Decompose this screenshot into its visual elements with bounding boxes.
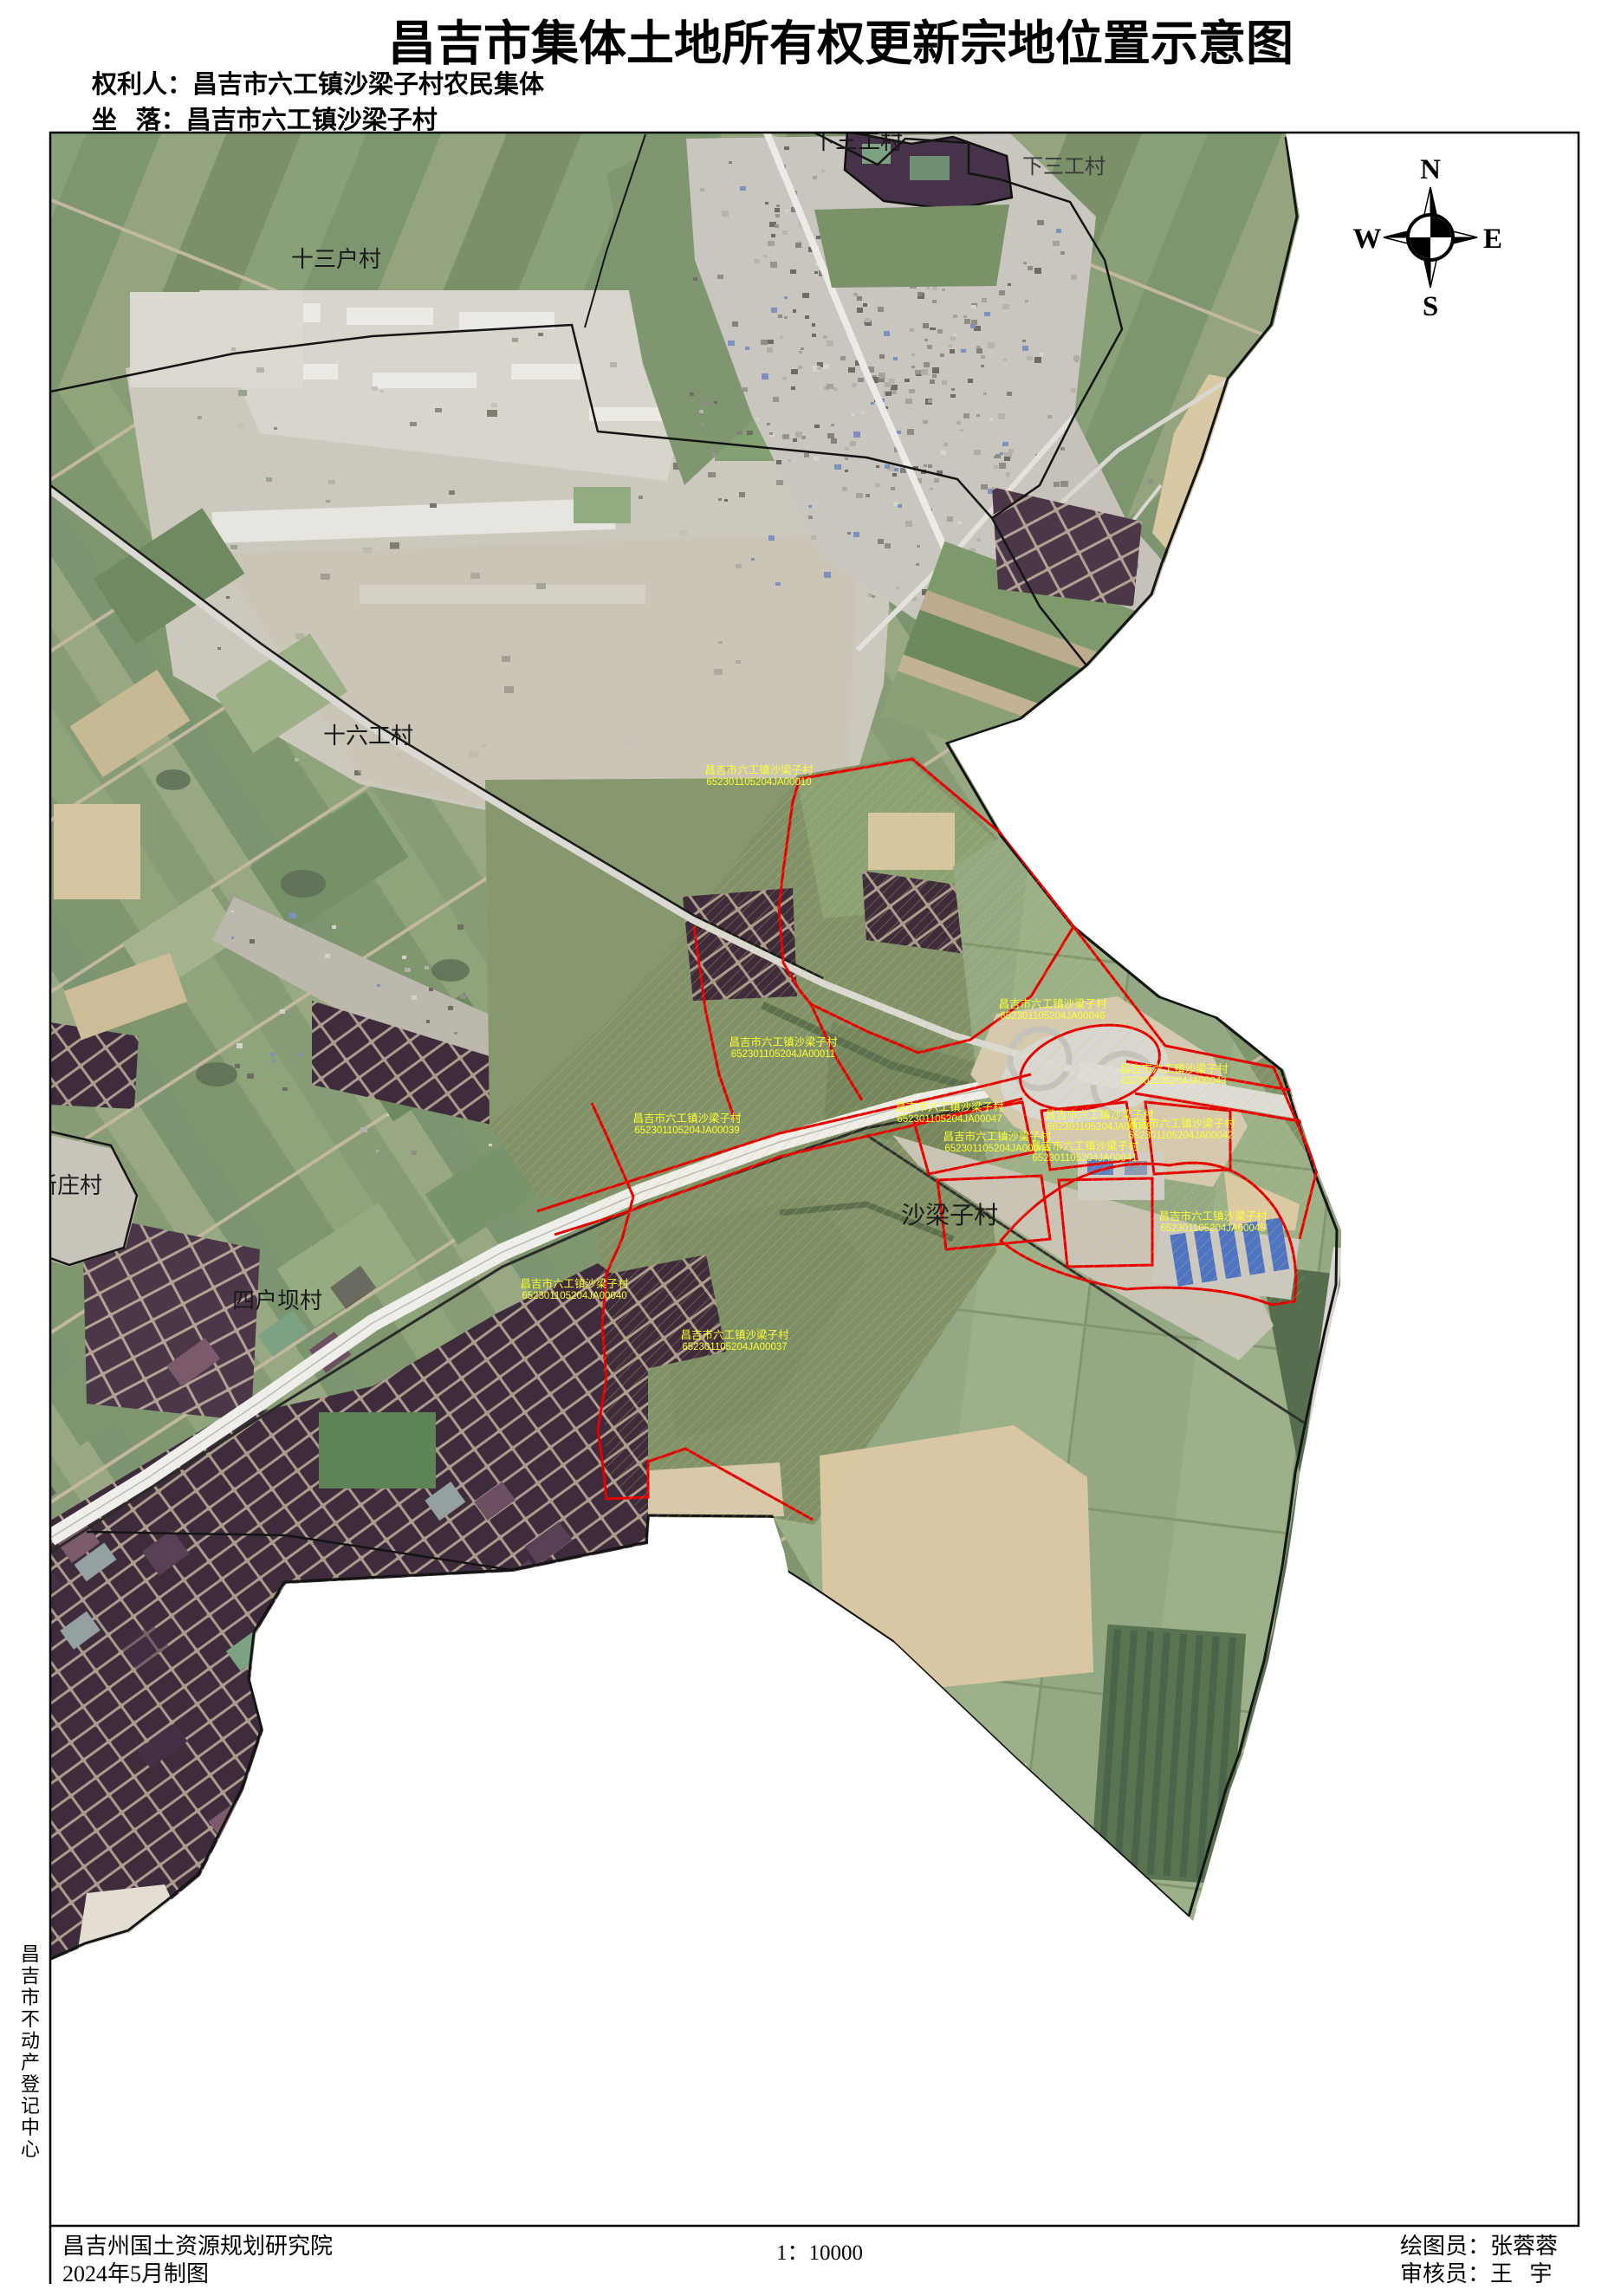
svg-text:S: S: [1423, 291, 1438, 322]
svg-text:昌吉市六工镇沙梁子村: 昌吉市六工镇沙梁子村: [998, 997, 1107, 1010]
svg-text:N: N: [1420, 154, 1441, 185]
svg-text:新庄村: 新庄村: [35, 1173, 102, 1198]
svg-text:昌吉市六工镇沙梁子村: 昌吉市六工镇沙梁子村: [1119, 1062, 1229, 1075]
svg-text:昌吉市六工镇沙梁子村: 昌吉市六工镇沙梁子村: [1030, 1139, 1139, 1152]
svg-text:652301105204JA00040: 652301105204JA00040: [522, 1291, 626, 1301]
svg-text:昌吉市六工镇沙梁子村: 昌吉市六工镇沙梁子村: [704, 763, 814, 776]
svg-text:四户坝村: 四户坝村: [232, 1288, 322, 1313]
svg-text:昌吉市六工镇沙梁子村: 昌吉市六工镇沙梁子村: [729, 1035, 838, 1048]
svg-text:E: E: [1483, 224, 1502, 255]
svg-text:昌吉市六工镇沙梁子村: 昌吉市六工镇沙梁子村: [680, 1328, 789, 1341]
svg-text:652301105204JA00045: 652301105204JA00045: [1160, 1223, 1265, 1234]
svg-text:沙梁子村: 沙梁子村: [901, 1202, 998, 1229]
svg-text:十三户村: 十三户村: [291, 247, 381, 272]
svg-text:昌吉市六工镇沙梁子村: 昌吉市六工镇沙梁子村: [1158, 1210, 1268, 1223]
svg-text:652301105204JA00046: 652301105204JA00046: [1000, 1011, 1105, 1022]
svg-text:昌吉市六工镇沙梁子村: 昌吉市六工镇沙梁子村: [632, 1112, 742, 1125]
svg-text:十六工村: 十六工村: [323, 723, 413, 749]
svg-text:652301105204JA00010: 652301105204JA00010: [706, 777, 811, 788]
svg-text:652301105204JA00042: 652301105204JA00042: [1128, 1131, 1233, 1141]
svg-text:652301105204JA00043: 652301105204JA00043: [1121, 1076, 1226, 1086]
svg-text:652301105204JA00039: 652301105204JA00039: [634, 1125, 739, 1136]
svg-text:652301105204JA00037: 652301105204JA00037: [682, 1342, 787, 1352]
svg-text:W: W: [1353, 224, 1382, 255]
svg-text:昌吉市六工镇沙梁子村: 昌吉市六工镇沙梁子村: [520, 1277, 629, 1290]
svg-text:昌吉市六工镇沙梁子村: 昌吉市六工镇沙梁子村: [1126, 1117, 1235, 1130]
svg-text:652301105204JA00047: 652301105204JA00047: [897, 1114, 1002, 1125]
svg-text:下三工村: 下三工村: [1022, 155, 1106, 178]
svg-text:652301105204JA00011: 652301105204JA00011: [731, 1049, 835, 1060]
svg-text:652301105204JA00041: 652301105204JA00041: [1032, 1153, 1137, 1164]
svg-text:昌吉市六工镇沙梁子村: 昌吉市六工镇沙梁子村: [895, 1100, 1004, 1113]
